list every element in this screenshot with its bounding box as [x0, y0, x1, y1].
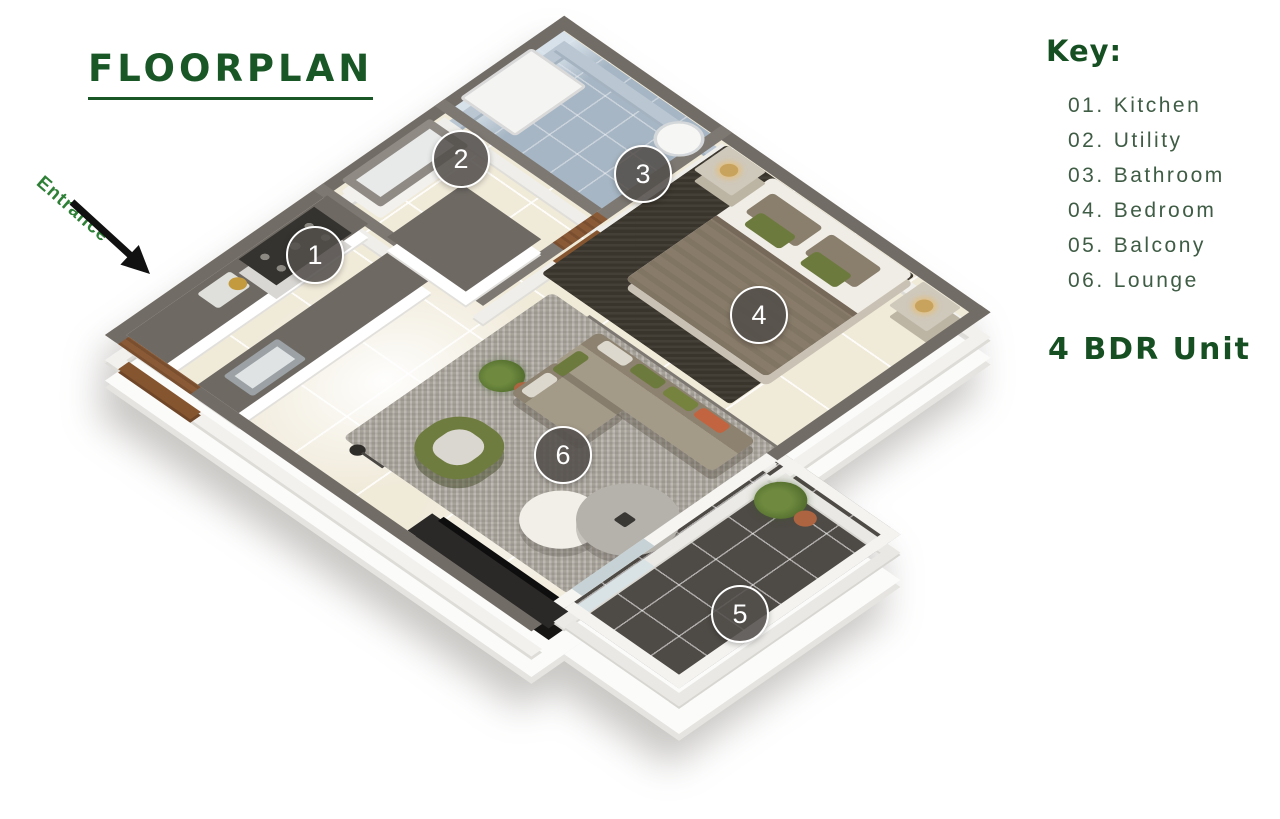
marker-number: 3 — [635, 159, 650, 190]
apartment-plan — [105, 16, 1105, 711]
key-item-kitchen: 01.Kitchen — [1068, 88, 1251, 123]
marker-number: 5 — [732, 599, 747, 630]
key-item-balcony: 05.Balcony — [1068, 228, 1251, 263]
key-item-lounge: 06.Lounge — [1068, 263, 1251, 298]
key-item-bedroom: 04.Bedroom — [1068, 193, 1251, 228]
key-item-utility: 02.Utility — [1068, 123, 1251, 158]
room-marker-lounge: 6 — [534, 426, 592, 484]
room-marker-bathroom: 3 — [614, 145, 672, 203]
marker-number: 6 — [555, 440, 570, 471]
page-title: FLOORPLAN — [88, 47, 373, 100]
entrance-arrow-icon — [58, 192, 168, 292]
room-marker-utility: 2 — [432, 130, 490, 188]
key-heading: Key: — [1046, 34, 1251, 68]
unit-type-label: 4 BDR Unit — [1048, 332, 1251, 367]
key-panel: Key: 01.Kitchen 02.Utility 03.Bathroom 0… — [1046, 34, 1251, 367]
room-marker-kitchen: 1 — [286, 226, 344, 284]
room-marker-bedroom: 4 — [730, 286, 788, 344]
marker-number: 1 — [307, 240, 322, 271]
room-marker-balcony: 5 — [711, 585, 769, 643]
marker-number: 4 — [751, 300, 766, 331]
marker-number: 2 — [453, 144, 468, 175]
key-list: 01.Kitchen 02.Utility 03.Bathroom 04.Bed… — [1046, 88, 1251, 298]
key-item-bathroom: 03.Bathroom — [1068, 158, 1251, 193]
